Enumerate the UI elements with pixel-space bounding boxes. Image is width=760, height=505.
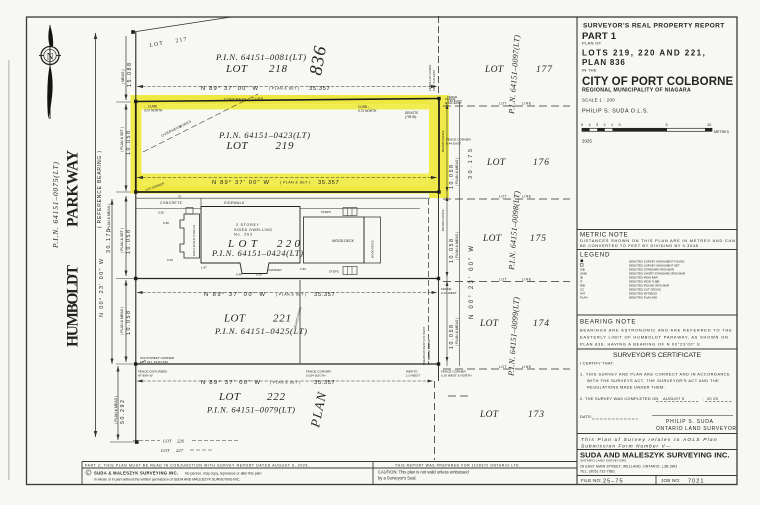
svg-text:( PLAN & SET ): ( PLAN & SET ) — [120, 127, 124, 152]
svg-text:EASTERLY LIMIT OF HUMBOLDT: EASTERLY LIMIT OF HUMBOLDT PARKWAY, AS S… — [580, 335, 728, 340]
svg-text:CONCRETE: CONCRETE — [160, 201, 183, 205]
svg-text:CITY OF PORT COLBORNE: CITY OF PORT COLBORNE — [582, 76, 734, 88]
svg-text:0.1± WEST: 0.1± WEST — [441, 291, 457, 295]
svg-text:SCALE 1 : 200: SCALE 1 : 200 — [582, 98, 615, 103]
svg-text:176: 176 — [533, 158, 549, 168]
svg-text:LOT: LOT — [499, 277, 507, 281]
svg-text:ENCLOSED PORCH: ENCLOSED PORCH — [192, 225, 196, 256]
svg-text:PLAN 836, HAVING A BEARING: PLAN 836, HAVING A BEARING OF N 00°23'00… — [580, 342, 702, 347]
svg-text:BOARD FENCE: BOARD FENCE — [427, 340, 431, 360]
svg-text:ONTARIO LAND SURVEYORS: ONTARIO LAND SURVEYORS — [580, 459, 626, 463]
svg-text:( PLAN & MEAS ): ( PLAN & MEAS ) — [120, 307, 124, 335]
svg-text:218: 218 — [269, 63, 288, 75]
svg-text:( REFERENCE BEARING ): ( REFERENCE BEARING ) — [97, 151, 103, 228]
svg-text:5: 5 — [581, 123, 583, 127]
svg-text:LINE: LINE — [522, 195, 532, 199]
svg-text:N 89° 37' 00" W: N 89° 37' 00" W — [212, 180, 270, 186]
svg-text:No. 263: No. 263 — [234, 233, 252, 237]
svg-text:( PLAN & SET ): ( PLAN & SET ) — [276, 293, 307, 297]
svg-text:No person, may copy, repro: No person, may copy, reproduce or alter … — [185, 472, 261, 476]
svg-text:AUGUST 5: AUGUST 5 — [663, 396, 684, 401]
svg-text:PLAN OF: PLAN OF — [582, 41, 601, 46]
svg-text:P.I.N. 64151–0424(LT): P.I.N. 64151–0424(LT) — [211, 248, 303, 258]
svg-text:LOT: LOT — [226, 140, 249, 152]
svg-text:WOOD DECK: WOOD DECK — [332, 239, 355, 243]
svg-text:0.84 EAST: 0.84 EAST — [447, 99, 462, 103]
svg-text:METRES: METRES — [714, 130, 730, 134]
svg-text:LOT: LOT — [218, 391, 241, 403]
svg-text:10: 10 — [707, 123, 711, 127]
svg-text:1.83: 1.83 — [300, 267, 306, 271]
svg-text:173: 173 — [528, 410, 544, 420]
svg-text:219: 219 — [276, 140, 295, 152]
svg-text:SURVEYOR'S CERTIFICATE: SURVEYOR'S CERTIFICATE — [613, 352, 701, 359]
svg-text:LOT: LOT — [499, 102, 507, 106]
svg-text:AT 80% W: AT 80% W — [138, 374, 153, 378]
svg-text:SIDEWALK: SIDEWALK — [224, 201, 245, 205]
svg-text:35.357: 35.357 — [314, 380, 335, 386]
svg-text:DENOTES PLAN 836: DENOTES PLAN 836 — [629, 295, 657, 299]
svg-text:REGIONAL MUNICIPALITY OF NI: REGIONAL MUNICIPALITY OF NIAGARA — [582, 88, 691, 94]
svg-text:N 00° 23' 00" W: N 00° 23' 00" W — [99, 258, 105, 317]
svg-text:BEARING NOTE: BEARING NOTE — [580, 319, 636, 326]
svg-text:20 25: 20 25 — [707, 396, 718, 401]
svg-text:TEL. (905) 732-7881: TEL. (905) 732-7881 — [580, 470, 615, 474]
svg-text:222: 222 — [267, 391, 286, 403]
svg-text:( PLAN & SET ): ( PLAN & SET ) — [280, 181, 311, 185]
svg-text:P.I.N. 64151–0079(LT): P.I.N. 64151–0079(LT) — [206, 405, 295, 415]
svg-text:2025: 2025 — [582, 139, 592, 144]
svg-text:15.088: 15.088 — [127, 63, 133, 87]
svg-text:CURB: CURB — [252, 97, 264, 101]
svg-text:LINE: LINE — [522, 365, 532, 369]
svg-text:SURVEYOR'S REAL PROPERTY RE: SURVEYOR'S REAL PROPERTY REPORT — [583, 23, 725, 30]
svg-text:177: 177 — [536, 65, 553, 75]
svg-text:3.07 NORTH: 3.07 NORTH — [144, 109, 163, 113]
svg-text:STEPS: STEPS — [321, 210, 331, 214]
svg-text:LOT: LOT — [479, 410, 499, 420]
svg-text:LOT: LOT — [484, 65, 504, 75]
svg-text:PHILIP S. SUDA: PHILIP S. SUDA — [666, 419, 714, 425]
svg-text:CHIMNEY: CHIMNEY — [268, 268, 282, 272]
svg-text:175: 175 — [530, 234, 546, 244]
svg-text:1. THIS SURVEY AND PLAN: 1. THIS SURVEY AND PLAN ARE CORRECT AND … — [580, 372, 730, 377]
svg-text:0.16 WEST & NORTH: 0.16 WEST & NORTH — [441, 374, 472, 378]
svg-text:WOOD FENCE: WOOD FENCE — [371, 240, 375, 258]
svg-text:0: 0 — [619, 123, 621, 127]
svg-text:,: , — [703, 396, 704, 401]
svg-text:0.72 NORTH: 0.72 NORTH — [358, 109, 377, 113]
svg-text:1.97: 1.97 — [201, 266, 207, 270]
svg-text:1: 1 — [611, 123, 613, 127]
svg-text:0.30: 0.30 — [256, 273, 262, 277]
svg-text:0.36: 0.36 — [158, 211, 164, 215]
svg-text:REGULATIONS MADE UNDER THEM: REGULATIONS MADE UNDER THEM. — [587, 385, 665, 390]
svg-text:227: 227 — [176, 448, 184, 453]
svg-text:N 89° 37' 00" W: N 89° 37' 00" W — [204, 292, 266, 298]
svg-text:LOT: LOT — [162, 439, 172, 444]
svg-text:IN THE: IN THE — [582, 68, 597, 73]
svg-text:CAUTION: This plan is not: CAUTION: This plan is not valid unless e… — [378, 470, 469, 475]
svg-text:LINE: LINE — [522, 102, 532, 106]
svg-text:0.36: 0.36 — [167, 258, 173, 262]
svg-text:WITH THE SURVEYS ACT, THE: WITH THE SURVEYS ACT, THE SURVEYOR'S ACT… — [587, 378, 719, 383]
svg-text:PREVIOUS WEST 0.5± WEST: PREVIOUS WEST 0.5± WEST — [422, 326, 426, 365]
svg-text:PLAN: PLAN — [580, 295, 588, 299]
svg-text:PART 2: THIS PLAN MUST B: PART 2: THIS PLAN MUST BE READ IN CONJUN… — [85, 463, 309, 467]
svg-text:BE CONVERTED TO FEET BY D: BE CONVERTED TO FEET BY DIVIDING BY 0.30… — [580, 243, 698, 248]
svg-text:( PLAN & MEAS ): ( PLAN & MEAS ) — [107, 204, 111, 232]
svg-text:P.I.N. 64151–0081(LT): P.I.N. 64151–0081(LT) — [215, 52, 306, 62]
svg-text:35.357: 35.357 — [314, 292, 335, 298]
svg-text:50.292: 50.292 — [120, 400, 126, 424]
svg-text:226: 226 — [177, 439, 185, 444]
svg-text:BEARINGS ARE ASTRONOMIC AND: BEARINGS ARE ASTRONOMIC AND ARE REFERRED… — [580, 328, 732, 333]
svg-text:in whole or in part witho: in whole or in part without the written … — [94, 478, 240, 482]
svg-text:LOT: LOT — [499, 365, 507, 369]
svg-text:LINE: LINE — [522, 277, 532, 281]
svg-text:0.44 EAST: 0.44 EAST — [446, 142, 461, 146]
svg-text:STEPS: STEPS — [329, 270, 339, 274]
svg-text:This Plan of Survey relate: This Plan of Survey relates to AOLS Plan — [581, 437, 717, 443]
svg-text:LOT: LOT — [499, 195, 507, 199]
svg-text:( MEAS ): ( MEAS ) — [121, 69, 125, 84]
svg-text:N: N — [47, 53, 54, 63]
svg-text:LOTS 219, 220 AND 221,: LOTS 219, 220 AND 221, — [582, 49, 706, 58]
svg-text:N 89° 37' 00" W: N 89° 37' 00" W — [201, 380, 261, 386]
svg-text:35.357: 35.357 — [318, 180, 339, 186]
svg-text:174: 174 — [533, 319, 549, 329]
svg-text:1.0 WEST: 1.0 WEST — [406, 374, 420, 378]
svg-text:I CERTIFY THAT:: I CERTIFY THAT: — [580, 361, 614, 366]
svg-text:LOT: LOT — [479, 319, 499, 329]
svg-text:P.I.N. 64151–0075(LT): P.I.N. 64151–0075(LT) — [51, 162, 60, 250]
svg-text:3: 3 — [596, 123, 598, 127]
svg-text:( PLAN & SET ): ( PLAN & SET ) — [120, 228, 124, 253]
svg-text:by a Surveyor's Seal.: by a Surveyor's Seal. — [378, 476, 417, 481]
svg-text:SUDA & MALESZYK SURVEYING: SUDA & MALESZYK SURVEYING INC. — [94, 471, 178, 476]
svg-text:LOT: LOT — [223, 313, 246, 325]
svg-text:JOB NO:: JOB NO: — [661, 478, 681, 483]
svg-text:COR. 0.3± EAST: COR. 0.3± EAST — [432, 69, 436, 91]
svg-text:35.357: 35.357 — [309, 86, 330, 92]
svg-text:( PLAN & MEAS ): ( PLAN & MEAS ) — [455, 318, 459, 346]
svg-text:LOT: LOT — [482, 234, 502, 244]
svg-text:5: 5 — [666, 123, 668, 127]
svg-text:LEGEND: LEGEND — [580, 252, 610, 259]
svg-text:( PLAN & SET ): ( PLAN & SET ) — [270, 381, 301, 385]
svg-text:DATE:: DATE: — [580, 414, 592, 419]
svg-text:N 89° 37' 00" W: N 89° 37' 00" W — [201, 86, 259, 92]
svg-text:PHILIP S. SUDA O.L.S.: PHILIP S. SUDA O.L.S. — [582, 109, 649, 115]
svg-text:2 STOREY: 2 STOREY — [236, 223, 260, 227]
svg-text:PLAN 836: PLAN 836 — [582, 58, 626, 67]
svg-text:( PLAN & MEAS ): ( PLAN & MEAS ) — [114, 396, 118, 424]
svg-text:7021: 7021 — [688, 478, 704, 484]
svg-text:LOT: LOT — [160, 448, 170, 453]
svg-text:2. THE SURVEY WAS COMPLET: 2. THE SURVEY WAS COMPLETED ON — [580, 396, 658, 401]
svg-text:SIDED DWELLING: SIDED DWELLING — [234, 228, 272, 232]
svg-text:0.034 SOUTH: 0.034 SOUTH — [306, 374, 325, 378]
svg-text:THIS REPORT WAS PREPARED F: THIS REPORT WAS PREPARED FOR 1108372 ONT… — [395, 463, 520, 467]
svg-text:LOT: LOT — [486, 158, 506, 168]
svg-text:(755 IB): (755 IB) — [405, 115, 416, 119]
svg-text:2: 2 — [604, 123, 606, 127]
svg-text:221: 221 — [273, 313, 291, 325]
svg-text:PARKWAY: PARKWAY — [65, 150, 82, 227]
svg-text:LOT: LOT — [225, 63, 248, 75]
svg-text:( PLAN & SET ): ( PLAN & SET ) — [269, 87, 300, 91]
svg-text:BOARD FENCE: BOARD FENCE — [441, 130, 445, 152]
svg-text:10.058: 10.058 — [126, 230, 132, 254]
svg-text:HUMBOLDT: HUMBOLDT — [65, 264, 82, 347]
svg-text:( PLAN & MEAS ): ( PLAN & MEAS ) — [455, 158, 459, 186]
svg-text:70: 70 — [178, 195, 182, 199]
svg-text:P.I.N. 64151–0423(LT): P.I.N. 64151–0423(LT) — [218, 130, 310, 140]
svg-text:4: 4 — [589, 123, 591, 127]
svg-text:10.058: 10.058 — [126, 311, 132, 335]
svg-text:0.38: 0.38 — [163, 221, 169, 225]
svg-text:ONTARIO LAND SURVEYOR: ONTARIO LAND SURVEYOR — [656, 426, 736, 432]
svg-text:BOARD FENCE: BOARD FENCE — [441, 209, 445, 231]
svg-text:Submission Form Number V—: Submission Form Number V— — [581, 444, 671, 450]
svg-text:( PLAN & MEAS ): ( PLAN & MEAS ) — [455, 232, 459, 260]
svg-text:25–75: 25–75 — [603, 478, 624, 484]
svg-text:0.46: 0.46 — [236, 273, 242, 277]
svg-text:28 EAST MAIN STREET, WELLA: 28 EAST MAIN STREET, WELLAND, ONTARIO, L… — [580, 465, 677, 469]
svg-text:FILE NO:: FILE NO: — [581, 478, 602, 483]
